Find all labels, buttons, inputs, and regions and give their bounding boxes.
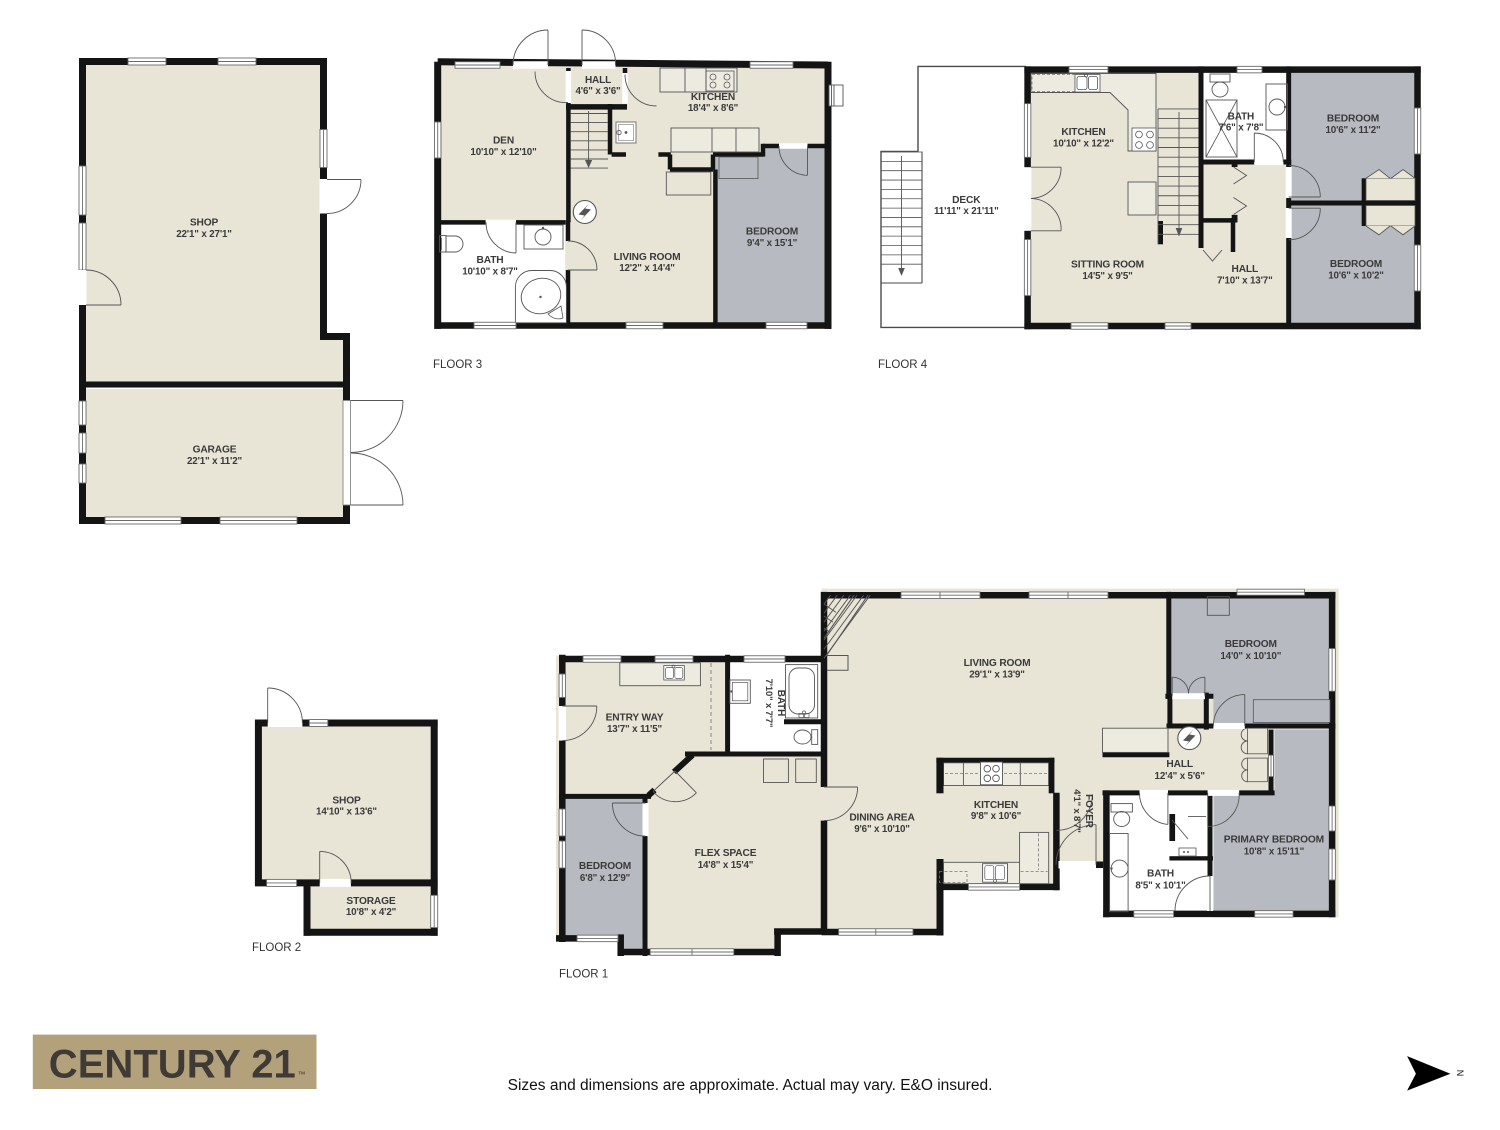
svg-text:22'1" x 27'1": 22'1" x 27'1": [176, 229, 232, 240]
svg-text:11'11" x 21'11": 11'11" x 21'11": [934, 206, 999, 217]
svg-text:HALL: HALL: [585, 75, 611, 86]
svg-text:BEDROOM: BEDROOM: [1327, 114, 1379, 125]
svg-text:22'1" x 11'2": 22'1" x 11'2": [187, 456, 242, 467]
svg-text:LIVING ROOM: LIVING ROOM: [964, 658, 1031, 669]
svg-text:13'7" x 11'5": 13'7" x 11'5": [607, 724, 662, 735]
svg-text:KITCHEN: KITCHEN: [1061, 127, 1105, 138]
svg-text:Sizes and dimensions are appro: Sizes and dimensions are approximate. Ac…: [508, 1077, 993, 1094]
svg-text:LIVING ROOM: LIVING ROOM: [614, 252, 681, 263]
svg-text:4'1" x 8'7": 4'1" x 8'7": [1071, 789, 1082, 833]
svg-text:DINING AREA: DINING AREA: [849, 813, 915, 824]
svg-text:BEDROOM: BEDROOM: [1225, 639, 1277, 650]
svg-text:10'10" x 12'2": 10'10" x 12'2": [1053, 139, 1114, 150]
svg-text:8'5" x 10'1": 8'5" x 10'1": [1135, 881, 1185, 892]
svg-text:7'6" x 7'8": 7'6" x 7'8": [1218, 123, 1263, 134]
svg-text:10'8" x 4'2": 10'8" x 4'2": [346, 907, 396, 918]
svg-text:STORAGE: STORAGE: [346, 896, 395, 907]
svg-text:HALL: HALL: [1232, 264, 1259, 275]
svg-text:N: N: [1455, 1070, 1465, 1077]
svg-text:9'6" x 10'10": 9'6" x 10'10": [854, 824, 910, 835]
svg-text:FLEX SPACE: FLEX SPACE: [695, 848, 757, 859]
svg-text:SHOP: SHOP: [332, 796, 361, 807]
svg-text:DEN: DEN: [493, 136, 514, 147]
svg-text:7'10" x 7'7": 7'10" x 7'7": [763, 679, 774, 728]
svg-text:PRIMARY BEDROOM: PRIMARY BEDROOM: [1224, 835, 1324, 846]
svg-text:10'10" x 12'10": 10'10" x 12'10": [470, 147, 536, 158]
svg-text:BATH: BATH: [1147, 869, 1174, 880]
svg-text:9'8" x 10'6": 9'8" x 10'6": [971, 811, 1021, 822]
svg-text:CENTURY 21: CENTURY 21: [49, 1042, 296, 1086]
svg-text:14'10" x 13'6": 14'10" x 13'6": [316, 807, 377, 818]
svg-text:FLOOR 4: FLOOR 4: [878, 359, 928, 371]
svg-text:SHOP: SHOP: [190, 218, 219, 229]
svg-text:HALL: HALL: [1166, 759, 1193, 770]
svg-text:DECK: DECK: [952, 195, 981, 206]
svg-text:4'6" x 3'6": 4'6" x 3'6": [576, 86, 621, 97]
svg-text:18'4" x 8'6": 18'4" x 8'6": [688, 103, 738, 114]
svg-text:BATH: BATH: [477, 255, 504, 266]
svg-text:™: ™: [298, 1070, 306, 1079]
svg-text:ENTRY WAY: ENTRY WAY: [606, 713, 664, 724]
svg-text:FLOOR 1: FLOOR 1: [559, 969, 608, 981]
svg-text:BATH: BATH: [775, 690, 786, 716]
svg-text:7'10" x 13'7": 7'10" x 13'7": [1217, 276, 1273, 287]
svg-text:14'0" x 10'10": 14'0" x 10'10": [1220, 651, 1281, 662]
svg-text:12'2" x 14'4": 12'2" x 14'4": [619, 263, 675, 274]
svg-text:FLOOR 3: FLOOR 3: [433, 359, 482, 371]
svg-text:10'6" x 11'2": 10'6" x 11'2": [1325, 125, 1380, 136]
svg-text:FLOOR 2: FLOOR 2: [252, 942, 301, 954]
svg-text:14'5" x 9'5": 14'5" x 9'5": [1082, 271, 1132, 282]
svg-text:KITCHEN: KITCHEN: [691, 92, 735, 103]
svg-text:GARAGE: GARAGE: [193, 445, 237, 456]
svg-text:9'4" x 15'1": 9'4" x 15'1": [747, 238, 797, 249]
svg-text:BEDROOM: BEDROOM: [746, 227, 798, 238]
svg-text:10'8" x 15'11": 10'8" x 15'11": [1244, 847, 1304, 858]
svg-text:12'4" x 5'6": 12'4" x 5'6": [1155, 771, 1205, 782]
svg-text:6'8" x 12'9": 6'8" x 12'9": [580, 873, 630, 884]
svg-text:29'1" x 13'9": 29'1" x 13'9": [969, 670, 1025, 681]
svg-text:BEDROOM: BEDROOM: [579, 861, 631, 872]
svg-text:KITCHEN: KITCHEN: [974, 800, 1018, 811]
svg-text:14'8" x 15'4": 14'8" x 15'4": [698, 860, 754, 871]
svg-text:10'10" x 8'7": 10'10" x 8'7": [462, 267, 518, 278]
svg-text:BATH: BATH: [1228, 112, 1254, 123]
svg-text:10'6" x 10'2": 10'6" x 10'2": [1328, 271, 1384, 282]
svg-text:BEDROOM: BEDROOM: [1330, 259, 1382, 270]
svg-text:SITTING ROOM: SITTING ROOM: [1071, 260, 1144, 271]
svg-text:FOYER: FOYER: [1083, 794, 1094, 829]
